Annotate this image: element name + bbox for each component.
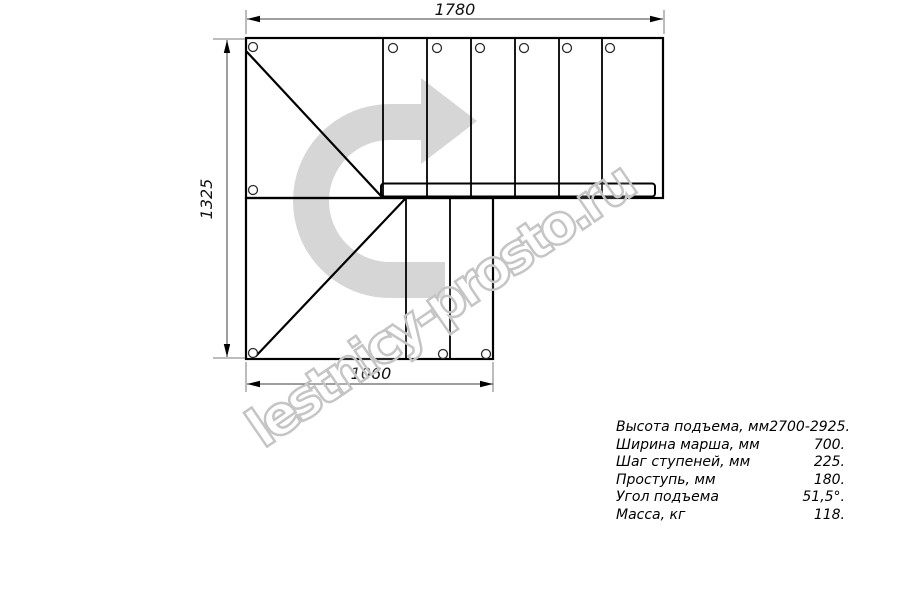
dimension-bottom-value: 1060 [351, 364, 392, 383]
spec-label: Угол подъема [616, 489, 719, 507]
dimension-arrow-top [224, 40, 230, 53]
dimension-top-value: 1780 [435, 0, 476, 19]
direction-arrow-head [421, 78, 477, 164]
direction-arrow [311, 78, 477, 280]
mount-hole [563, 44, 572, 53]
dimension-arrow-right [650, 16, 663, 22]
spec-label: Шаг ступеней, мм [616, 454, 750, 472]
spec-label: Масса, кг [616, 507, 685, 525]
spec-value: 700. [814, 437, 845, 455]
spec-row-angle: Угол подъема 51,5°. [616, 489, 845, 507]
mount-hole [433, 44, 442, 53]
dimension-arrow-right [480, 381, 493, 387]
dimension-bottom: 1060 [246, 362, 493, 392]
spec-label: Ширина марша, мм [616, 437, 760, 455]
mount-hole [482, 350, 491, 359]
mount-hole [476, 44, 485, 53]
dimension-top: 1780 [246, 0, 664, 34]
mount-hole [249, 43, 258, 52]
spec-value: 225. [814, 454, 845, 472]
spec-label: Высота подъема, мм [616, 419, 769, 437]
spec-table: Высота подъема, мм 2700-2925. Ширина мар… [616, 419, 845, 524]
spec-row-height: Высота подъема, мм 2700-2925. [616, 419, 845, 437]
spec-row-tread: Проступь, мм 180. [616, 472, 845, 490]
spec-value: 180. [814, 472, 845, 490]
mount-hole [249, 186, 258, 195]
mount-hole [520, 44, 529, 53]
mount-hole [606, 44, 615, 53]
dimension-arrow-bottom [224, 344, 230, 357]
dimension-arrow-left [247, 381, 260, 387]
spec-value: 51,5°. [802, 489, 845, 507]
dimension-left-value: 1325 [197, 179, 216, 220]
spec-row-width: Ширина марша, мм 700. [616, 437, 845, 455]
stringer-bar [381, 184, 655, 197]
staircase-drawing-page: 1780 1325 1060 lestnicy-prosto.ru Высота… [0, 0, 900, 600]
spec-value: 2700-2925. [769, 419, 850, 437]
dimension-arrow-left [247, 16, 260, 22]
spec-value: 118. [814, 507, 845, 525]
mount-hole [249, 349, 258, 358]
spec-label: Проступь, мм [616, 472, 716, 490]
dimension-left: 1325 [197, 39, 245, 358]
mount-hole [389, 44, 398, 53]
spec-row-step-pitch: Шаг ступеней, мм 225. [616, 454, 845, 472]
spec-row-mass: Масса, кг 118. [616, 507, 845, 525]
mount-hole [439, 350, 448, 359]
